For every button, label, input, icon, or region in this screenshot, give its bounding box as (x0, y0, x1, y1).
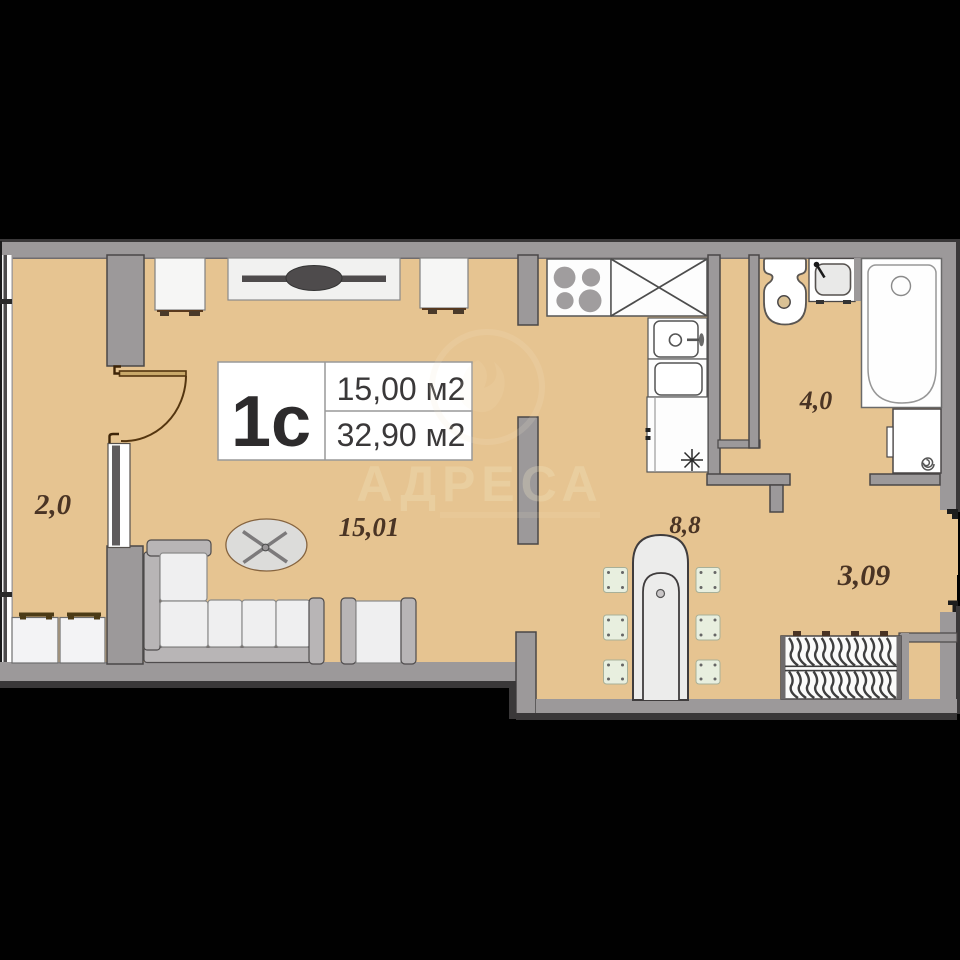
svg-text:15,00 м2: 15,00 м2 (337, 371, 466, 407)
svg-text:АДРЕСА: АДРЕСА (356, 456, 603, 512)
svg-text:1с: 1с (231, 382, 311, 462)
svg-text:3,09: 3,09 (837, 559, 891, 592)
svg-text:8,8: 8,8 (669, 512, 701, 539)
svg-text:2,0: 2,0 (34, 489, 71, 521)
svg-text:4,0: 4,0 (799, 386, 833, 415)
svg-text:15,01: 15,01 (339, 512, 400, 542)
